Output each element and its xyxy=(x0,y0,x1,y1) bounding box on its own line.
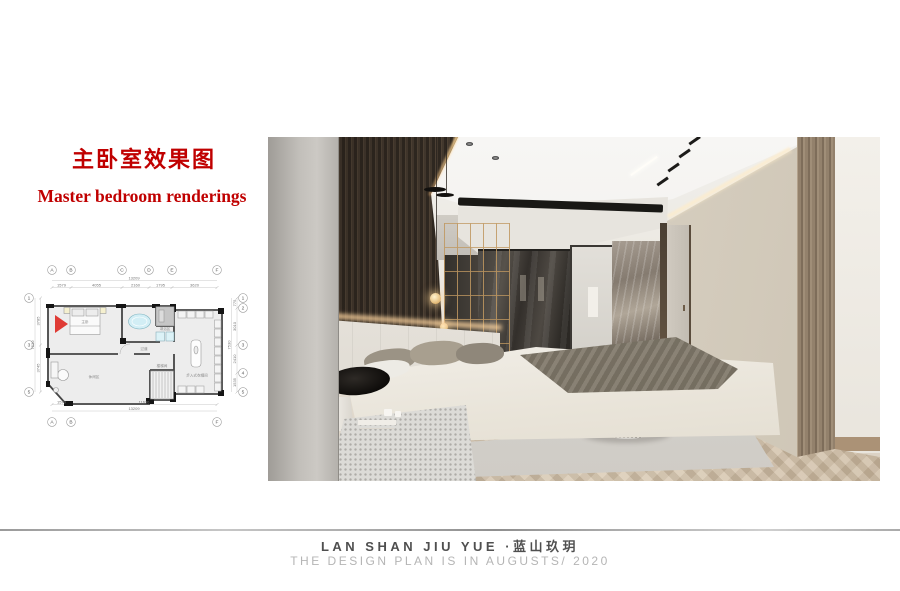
svg-text:11630: 11630 xyxy=(139,399,151,404)
grid-letter: A xyxy=(50,420,54,426)
pendant-cord xyxy=(436,137,437,189)
svg-text:3620: 3620 xyxy=(190,282,200,287)
grid-letter: E xyxy=(170,268,173,274)
wood-pillar xyxy=(797,137,839,459)
hanging-clothes xyxy=(520,275,526,301)
shower-plan xyxy=(156,307,174,326)
plaster-column xyxy=(268,137,339,481)
dim-total-left: 7530 xyxy=(30,340,35,350)
cup xyxy=(384,409,392,416)
dim-total-top: 13209 xyxy=(128,275,140,280)
footer-divider xyxy=(0,529,900,531)
footer-subtitle: THE DESIGN PLAN IS IN AUGUSTS/ 2020 xyxy=(0,554,900,568)
room-label-shower: 淋浴区 xyxy=(160,326,171,331)
svg-text:1535: 1535 xyxy=(232,377,237,387)
page-title-chinese: 主卧室效果图 xyxy=(18,142,270,174)
room-label-lounge: 休闲区 xyxy=(89,374,100,379)
books xyxy=(358,420,396,425)
grid-number: 2 xyxy=(242,306,245,312)
grid-number: 5 xyxy=(242,390,245,396)
brand-title: LAN SHAN JIU YUE ·蓝山玖玥 xyxy=(0,536,900,555)
page-title-english: Master bedroom renderings xyxy=(4,186,280,207)
room-label-master: 主卧 xyxy=(81,319,89,324)
grid-number: 4 xyxy=(242,371,245,377)
svg-text:3785: 3785 xyxy=(35,316,40,326)
dim-total-right: 7530 xyxy=(226,340,231,350)
grid-letter: D xyxy=(147,268,151,274)
pendant-cord xyxy=(436,192,437,297)
svg-text:3010: 3010 xyxy=(232,321,237,331)
dim-total-bottom: 13209 xyxy=(128,406,140,411)
wood-baseboard xyxy=(835,437,880,451)
pendant-cord xyxy=(446,137,447,195)
grid-number: 1 xyxy=(28,296,31,302)
svg-text:3745: 3745 xyxy=(35,363,40,373)
door-handle xyxy=(683,305,685,311)
towel xyxy=(588,287,598,317)
room-label-closet: 步入式衣帽间 xyxy=(186,373,208,378)
svg-text:1579: 1579 xyxy=(57,399,67,404)
grid-number: 1 xyxy=(242,296,245,302)
grid-letter: B xyxy=(69,268,72,274)
grid-letter: B xyxy=(69,420,72,426)
recessed-spotlight xyxy=(492,156,499,160)
grid-number: 5 xyxy=(28,390,31,396)
right-wall xyxy=(835,137,880,453)
grid-letter: F xyxy=(216,420,219,426)
svg-text:4055: 4055 xyxy=(92,282,102,287)
recessed-spotlight xyxy=(466,142,473,146)
grid-letter: F xyxy=(216,268,219,274)
room-label-corridor: 过道 xyxy=(140,346,148,351)
svg-text:2160: 2160 xyxy=(131,282,141,287)
hanging-clothes xyxy=(538,277,544,301)
svg-text:775: 775 xyxy=(232,299,237,306)
grid-number: 3 xyxy=(242,343,245,349)
floor-plan: A B C D E F 1 3 5 1 2 3 4 5 A B F 13209 … xyxy=(22,254,262,446)
svg-text:2410: 2410 xyxy=(232,354,237,364)
globe-lamp xyxy=(430,293,441,304)
grid-letter: C xyxy=(120,268,124,274)
design-presentation-page: 主卧室效果图 Master bedroom renderings xyxy=(0,0,900,591)
pendant-lamp xyxy=(436,193,454,197)
svg-text:1795: 1795 xyxy=(156,282,166,287)
master-bedroom-rendering xyxy=(268,137,880,481)
cup xyxy=(395,411,401,417)
svg-text:1579: 1579 xyxy=(57,282,67,287)
pendant-lamp xyxy=(424,187,446,192)
room-label-stairs: 楼梯间 xyxy=(157,363,168,368)
grid-letter: A xyxy=(50,268,54,274)
